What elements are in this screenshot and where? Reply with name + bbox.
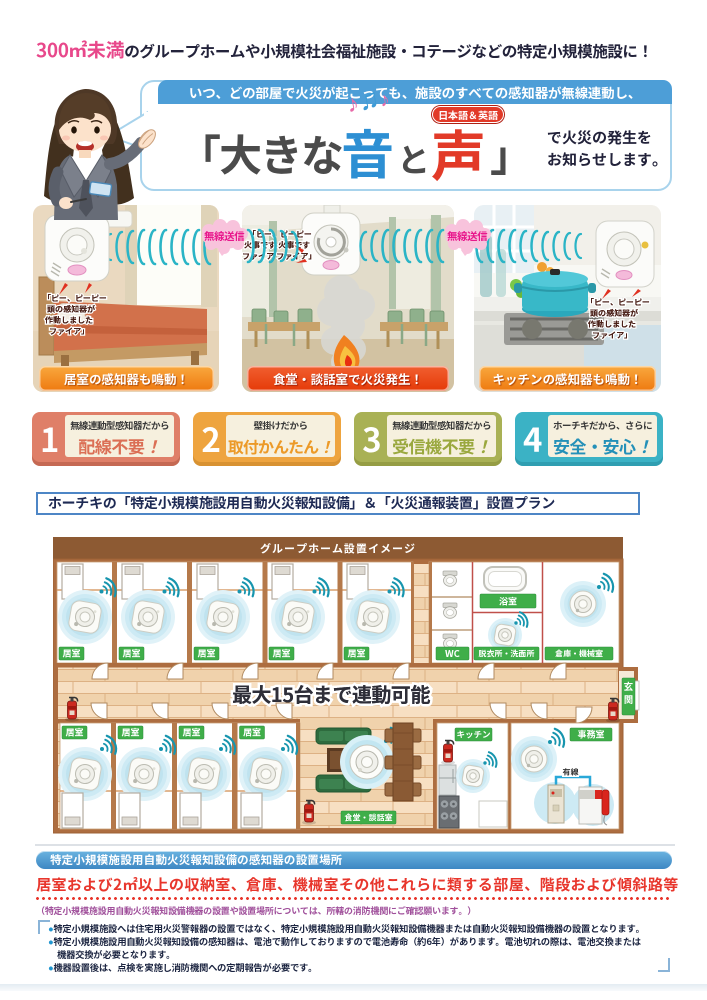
svg-text:頭の感知器が: 頭の感知器が: [589, 308, 638, 319]
svg-text:WC: WC: [445, 646, 461, 660]
svg-text:「ピー、ピーピー: 「ピー、ピーピー: [586, 297, 650, 308]
svg-text:有線: 有線: [563, 767, 579, 778]
svg-text:ファイア」: ファイア」: [49, 326, 89, 337]
svg-text:食堂・談話室: 食堂・談話室: [345, 813, 393, 824]
svg-text:グループホーム設置イメージ: グループホーム設置イメージ: [260, 541, 416, 557]
svg-text:倉庫・機械室: 倉庫・機械室: [555, 649, 603, 660]
svg-text:居室: 居室: [121, 726, 139, 739]
svg-text:居室: 居室: [197, 647, 215, 660]
svg-text:脱衣所・洗面所: 脱衣所・洗面所: [479, 649, 535, 660]
svg-text:最大15台まで連動可能: 最大15台まで連動可能: [232, 679, 431, 708]
svg-text:居室: 居室: [65, 726, 83, 739]
svg-text:作動しました: 作動しました: [45, 315, 93, 326]
svg-text:居室: 居室: [122, 647, 140, 660]
svg-text:居室: 居室: [182, 726, 200, 739]
svg-text:居室: 居室: [243, 726, 261, 739]
svg-text:事務室: 事務室: [576, 728, 604, 741]
svg-text:関: 関: [624, 692, 634, 706]
svg-text:居室: 居室: [272, 647, 290, 660]
svg-text:頭の感知器が: 頭の感知器が: [46, 304, 95, 315]
svg-text:キッチン: キッチン: [456, 729, 490, 741]
svg-text:浴室: 浴室: [499, 595, 517, 608]
svg-text:ファイア」: ファイア」: [592, 330, 632, 341]
svg-text:「ピー、ピーピー: 「ピー、ピーピー: [43, 293, 107, 304]
svg-text:作動しました: 作動しました: [588, 319, 636, 330]
svg-text:無線送信: 無線送信: [447, 229, 488, 244]
svg-text:玄: 玄: [624, 679, 634, 693]
svg-text:無線送信: 無線送信: [204, 229, 245, 244]
svg-text:居室: 居室: [347, 647, 365, 660]
svg-text:居室: 居室: [62, 647, 80, 660]
